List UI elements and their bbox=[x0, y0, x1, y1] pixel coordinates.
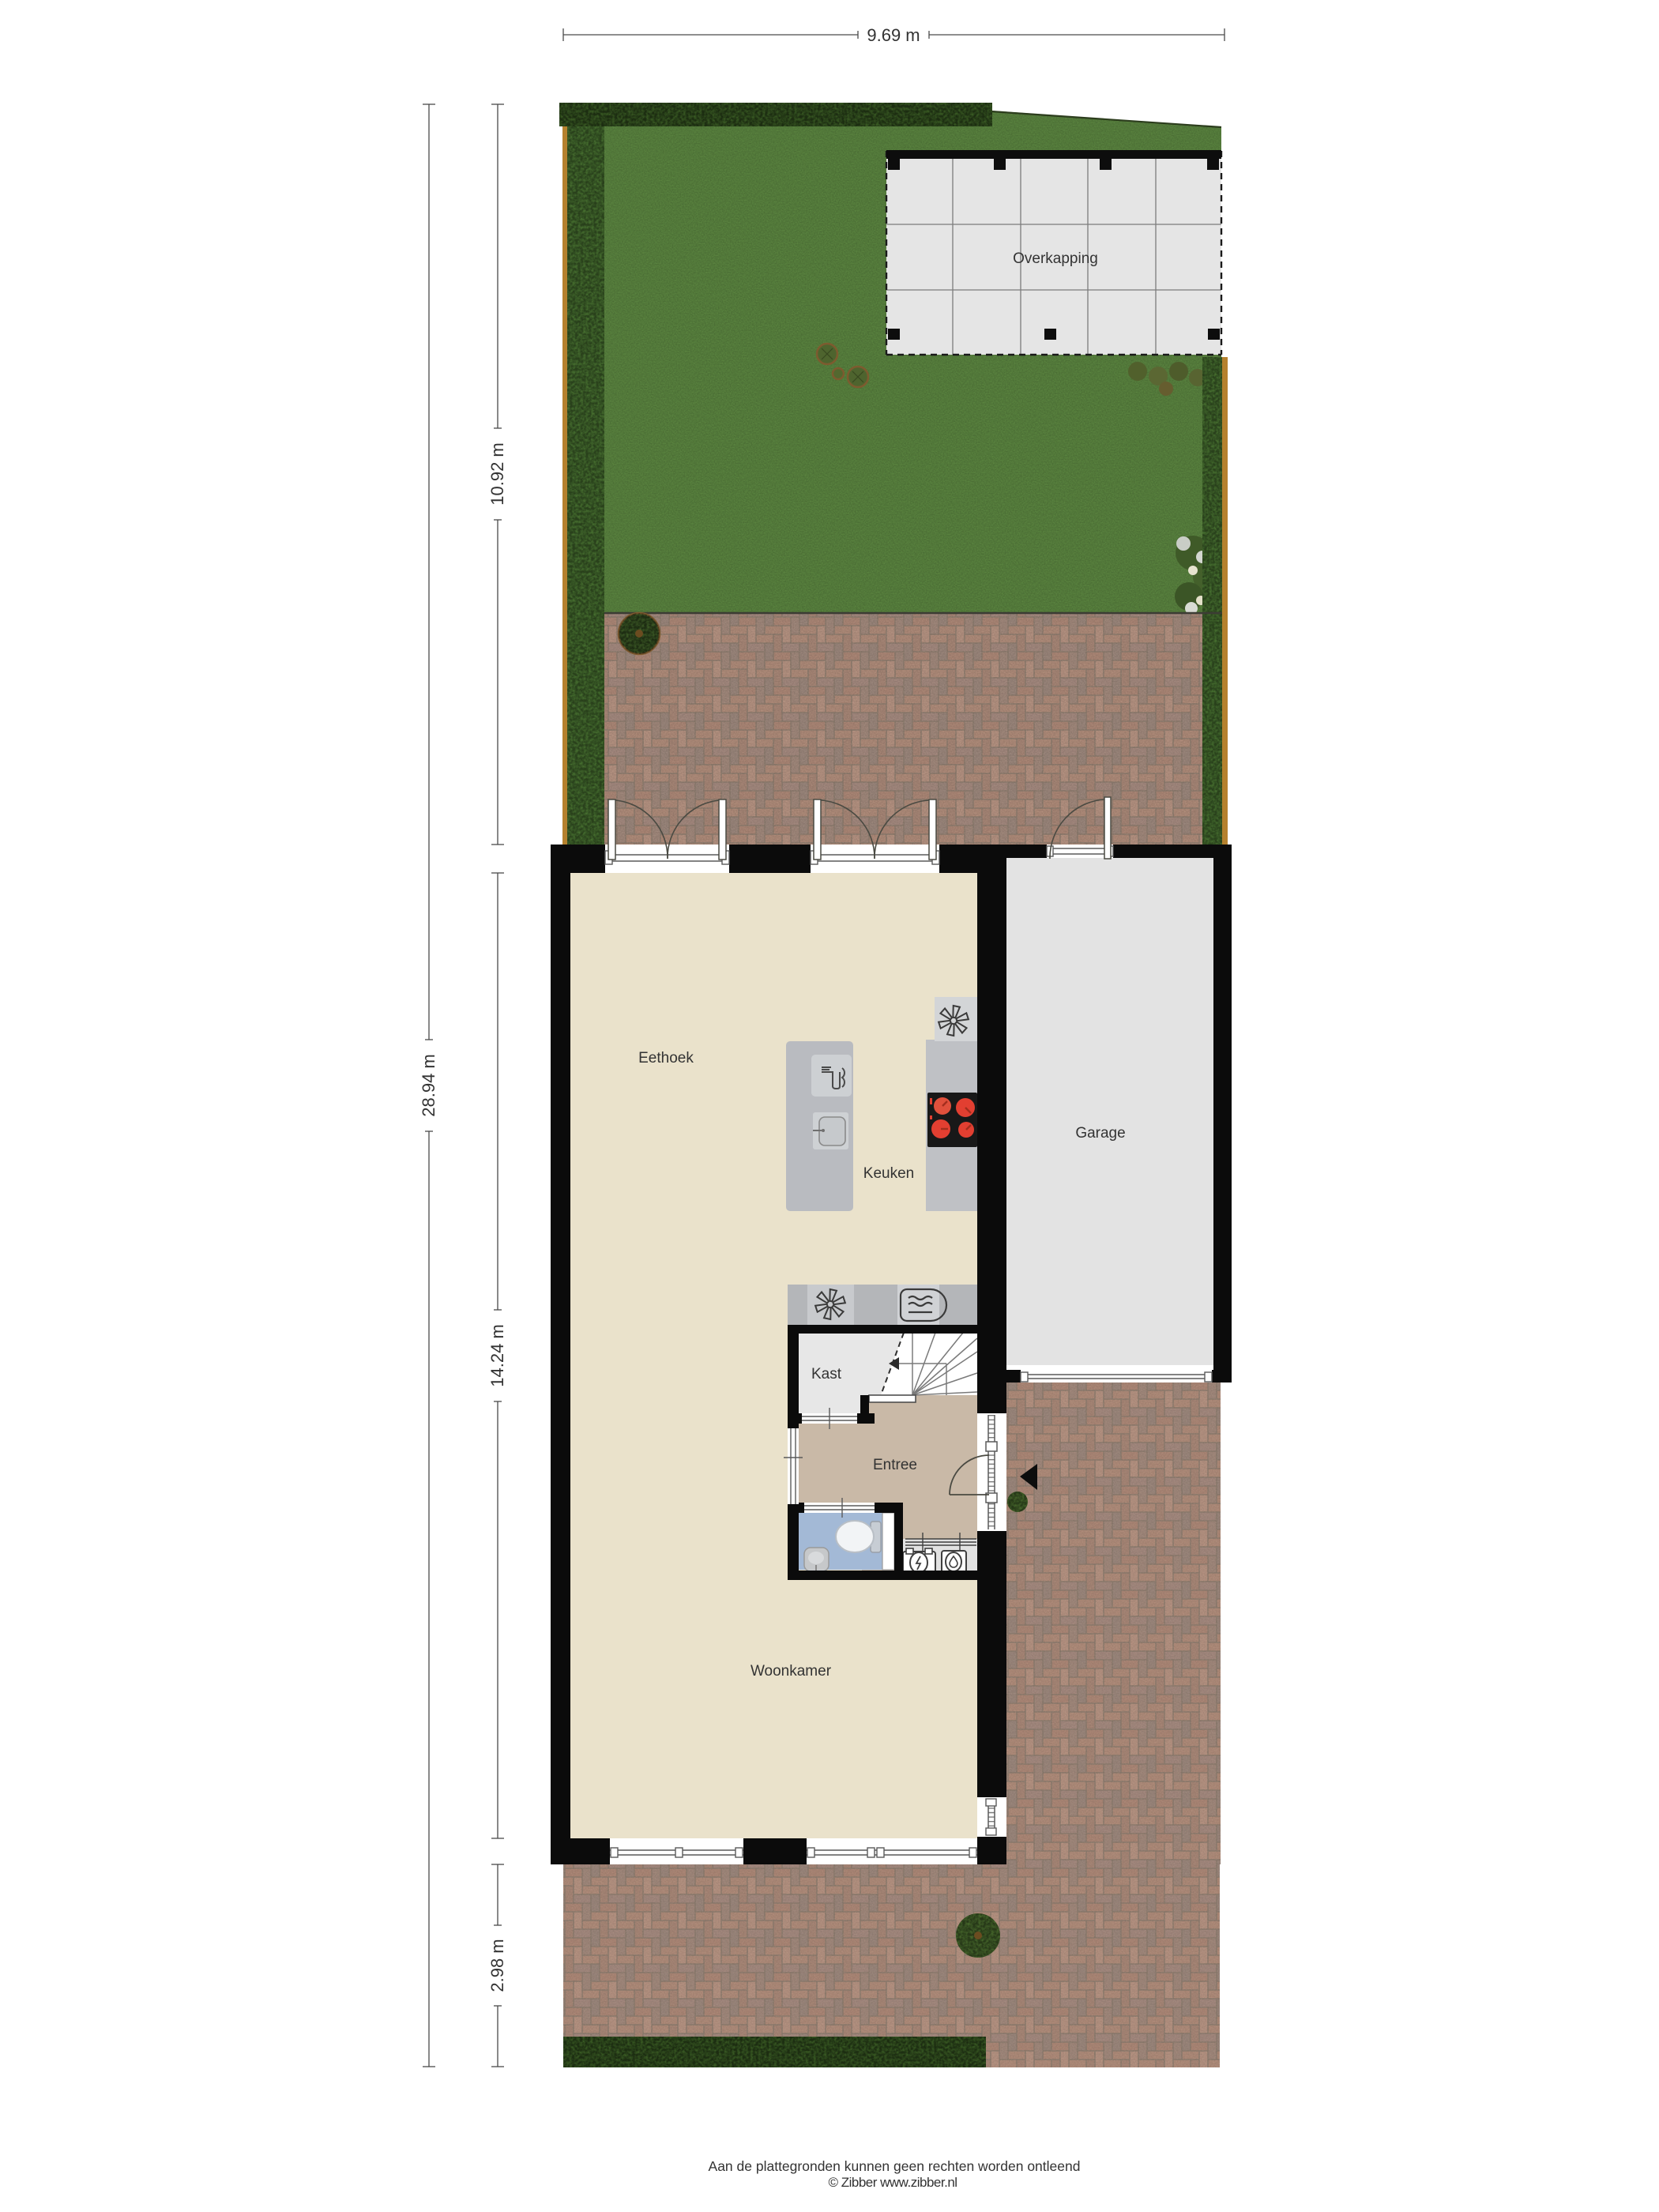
svg-text:Overkapping: Overkapping bbox=[1013, 250, 1098, 267]
svg-text:2.98 m: 2.98 m bbox=[487, 1939, 507, 1992]
svg-text:Garage: Garage bbox=[1075, 1125, 1125, 1142]
svg-text:Kast: Kast bbox=[811, 1366, 842, 1382]
svg-text:Entree: Entree bbox=[873, 1457, 917, 1473]
svg-text:© Zibber www.zibber.nl: © Zibber www.zibber.nl bbox=[828, 2175, 957, 2190]
svg-text:Aan de plattegronden kunnen ge: Aan de plattegronden kunnen geen rechten… bbox=[709, 2158, 1081, 2174]
svg-text:Woonkamer: Woonkamer bbox=[750, 1663, 832, 1680]
svg-text:9.69 m: 9.69 m bbox=[867, 25, 920, 45]
svg-text:28.94 m: 28.94 m bbox=[419, 1054, 438, 1117]
svg-text:14.24 m: 14.24 m bbox=[487, 1324, 507, 1387]
svg-text:Keuken: Keuken bbox=[863, 1165, 914, 1182]
svg-text:Eethoek: Eethoek bbox=[638, 1050, 694, 1066]
svg-text:10.92 m: 10.92 m bbox=[487, 442, 507, 506]
